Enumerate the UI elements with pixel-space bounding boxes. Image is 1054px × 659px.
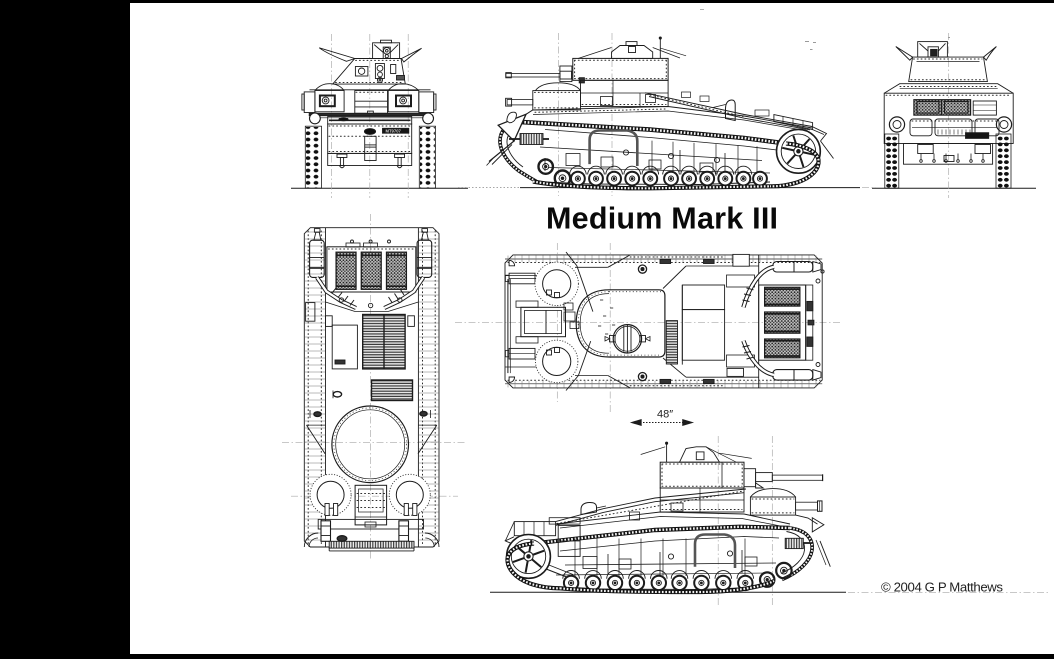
svg-text:48″: 48″: [657, 408, 673, 420]
svg-text:MT9707: MT9707: [386, 128, 402, 133]
svg-text:Medium Mark III: Medium Mark III: [546, 202, 778, 236]
